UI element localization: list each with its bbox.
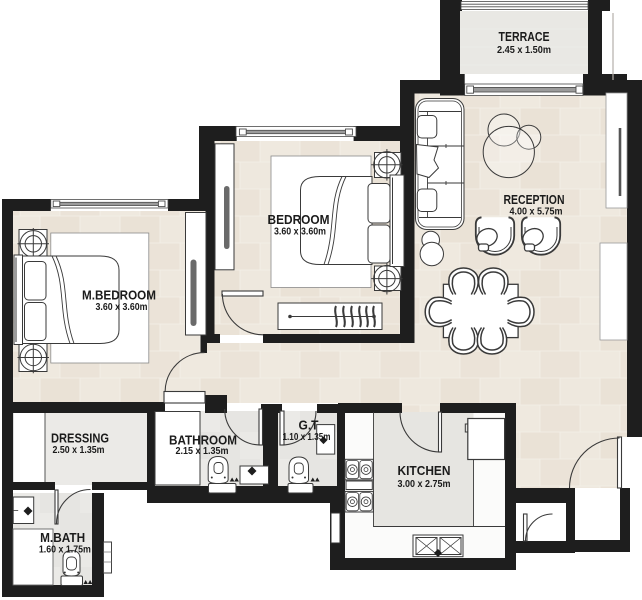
svg-text:2.50 x 1.35m: 2.50 x 1.35m	[53, 445, 105, 456]
svg-text:2.15 x 1.35m: 2.15 x 1.35m	[176, 446, 229, 457]
svg-text:3.60 x 3.60m: 3.60 x 3.60m	[96, 302, 148, 313]
svg-text:M.BEDROOM: M.BEDROOM	[82, 289, 156, 303]
svg-text:G.T: G.T	[299, 419, 319, 433]
svg-text:TERRACE: TERRACE	[499, 30, 550, 44]
svg-text:KITCHEN: KITCHEN	[398, 464, 451, 478]
svg-text:RECEPTION: RECEPTION	[504, 193, 565, 207]
svg-text:BEDROOM: BEDROOM	[268, 213, 330, 227]
svg-text:M.BATH: M.BATH	[40, 531, 85, 545]
svg-text:3.00 x 2.75m: 3.00 x 2.75m	[398, 479, 451, 490]
svg-text:4.00 x 5.75m: 4.00 x 5.75m	[510, 207, 563, 218]
svg-text:2.45 x 1.50m: 2.45 x 1.50m	[497, 45, 551, 56]
svg-text:1.60 x 1.75m: 1.60 x 1.75m	[39, 545, 91, 556]
svg-text:1.10 x 1.35m: 1.10 x 1.35m	[283, 432, 331, 443]
svg-text:3.60 x 3.60m: 3.60 x 3.60m	[274, 227, 326, 238]
svg-text:DRESSING: DRESSING	[51, 432, 109, 446]
